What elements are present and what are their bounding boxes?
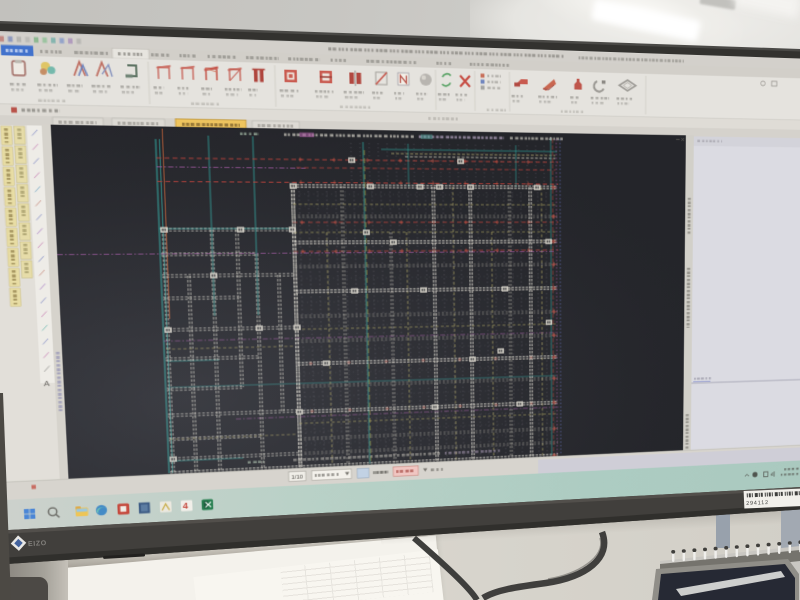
svg-text:1/10: 1/10 xyxy=(291,474,303,480)
svg-text:4: 4 xyxy=(183,502,189,512)
